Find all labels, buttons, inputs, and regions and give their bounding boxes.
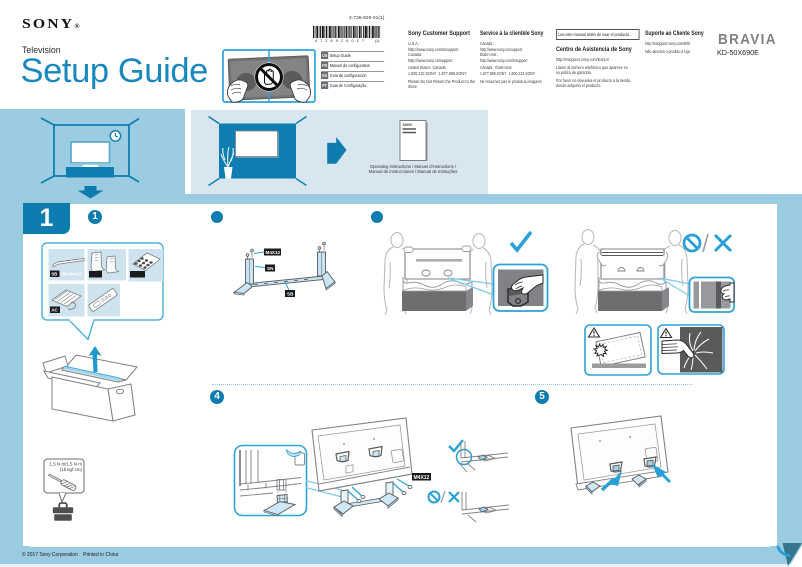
svg-text:SB: SB bbox=[51, 272, 57, 277]
svg-text:SN M4X12: SN M4X12 bbox=[61, 272, 83, 277]
svg-text:AC: AC bbox=[51, 308, 58, 313]
svg-text:SN: SN bbox=[267, 266, 274, 271]
svg-text:(1): (1) bbox=[375, 39, 380, 43]
svg-text:1.5 N·m/1.5 N·m: 1.5 N·m/1.5 N·m bbox=[50, 462, 83, 467]
svg-text:SB: SB bbox=[287, 292, 294, 297]
svg-text:(15 kgf·cm): (15 kgf·cm) bbox=[60, 467, 83, 472]
svg-text:4726926017: 4726926017 bbox=[315, 39, 367, 43]
svg-text:SONY: SONY bbox=[403, 123, 413, 127]
svg-text:M4X12: M4X12 bbox=[266, 250, 281, 255]
svg-text:M4X12: M4X12 bbox=[414, 475, 430, 481]
svg-text:Manual de instrucciones / Manu: Manual de instrucciones / Manual de Inst… bbox=[369, 169, 458, 174]
